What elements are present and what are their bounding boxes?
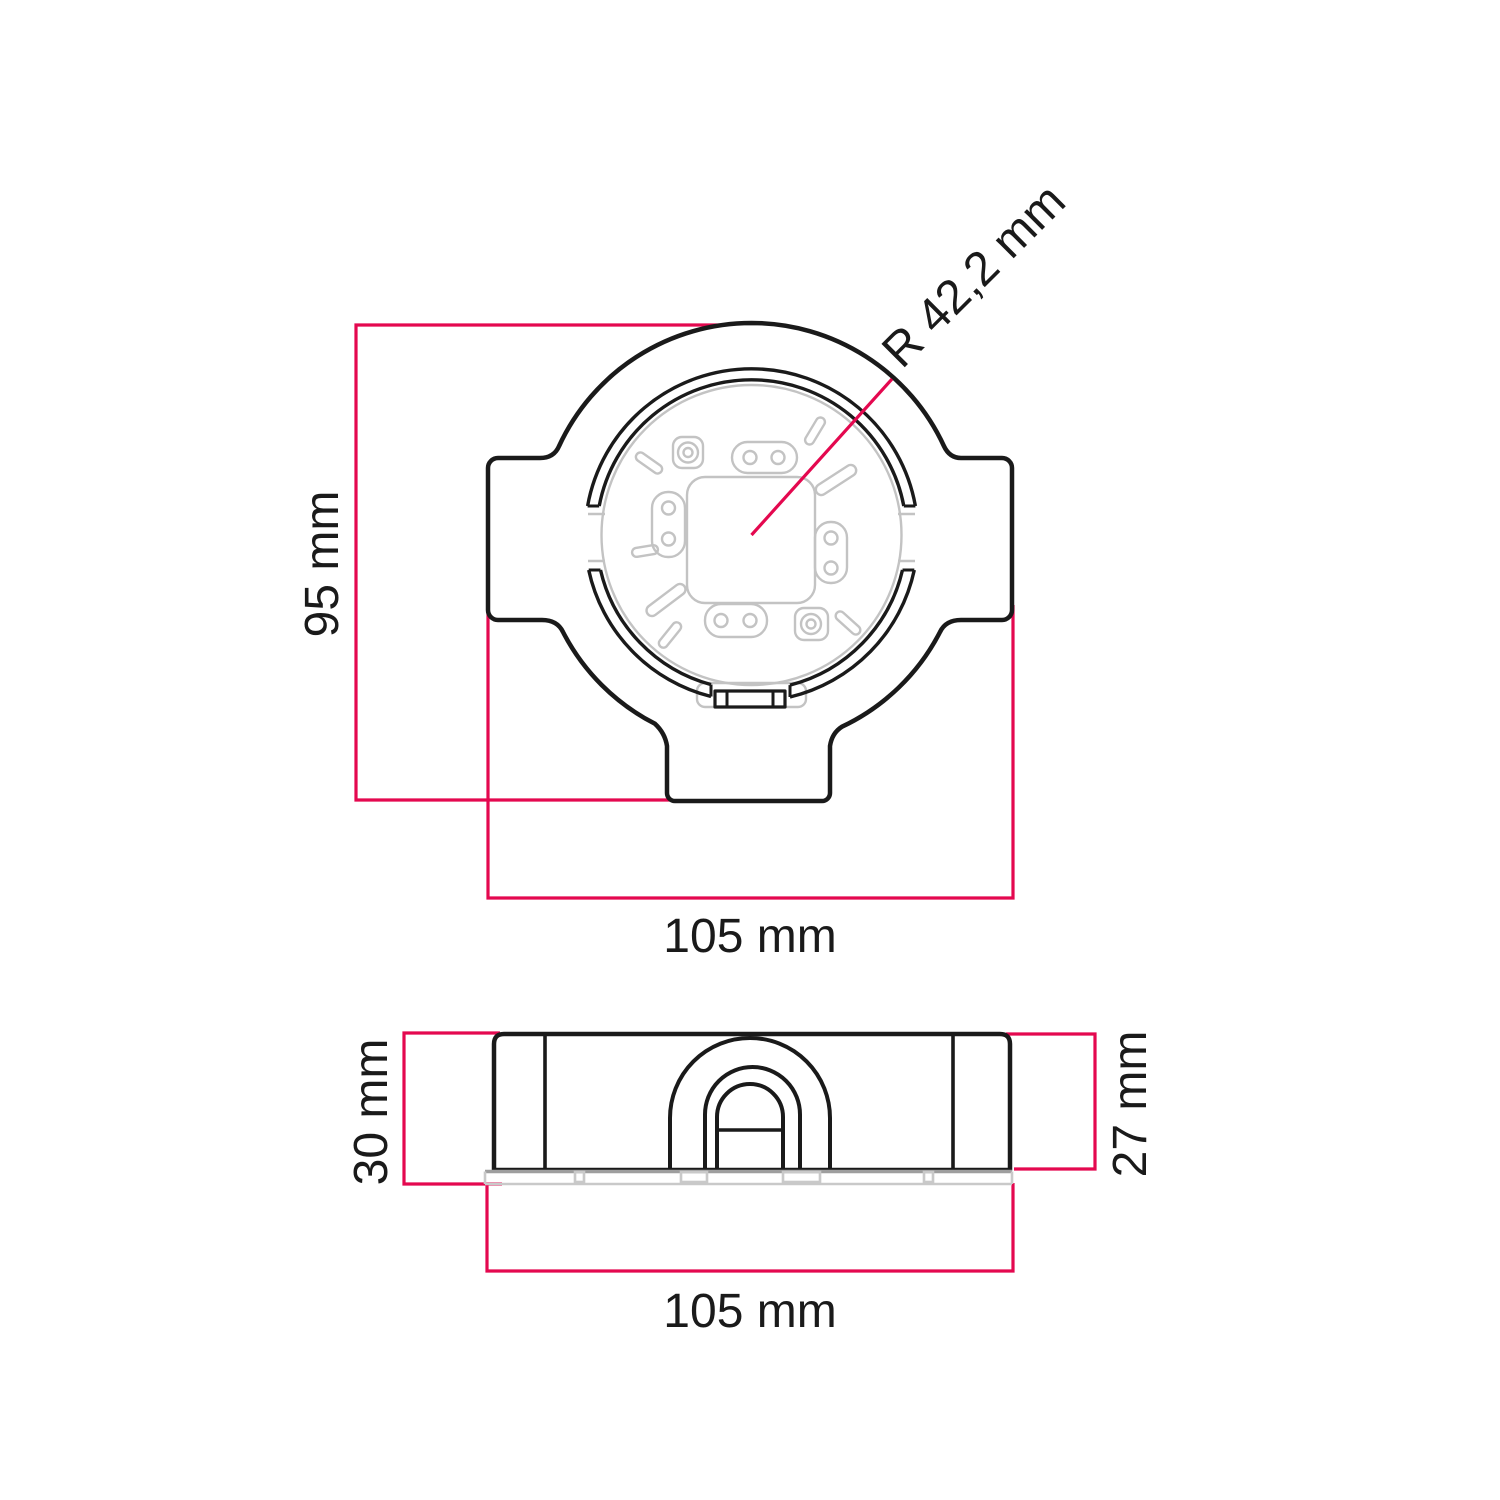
dimension-label-top-height: 95 mm: [296, 491, 349, 638]
outer-body-outline: [488, 323, 1012, 801]
side-view: 30 mm 27 mm 105 mm: [345, 1031, 1157, 1338]
dimension-label-side-total-height: 30 mm: [345, 1039, 398, 1186]
dimension-label-radius: R 42,2 mm: [872, 174, 1075, 377]
base-notch-1: [575, 1172, 584, 1182]
dimension-105mm-side: [487, 1183, 1013, 1271]
dimension-27mm: [1006, 1034, 1095, 1169]
top-view: 95 mm 105 mm R 42,2 mm: [296, 174, 1076, 963]
terminal-block: [715, 691, 785, 707]
technical-drawing-page: 95 mm 105 mm R 42,2 mm: [0, 0, 1500, 1500]
base-notch-3: [783, 1172, 820, 1182]
dimension-27mm-extension-lines: [1006, 1034, 1095, 1169]
base-notch-2: [681, 1172, 707, 1182]
technical-drawing-canvas: 95 mm 105 mm R 42,2 mm: [0, 0, 1500, 1500]
dimension-label-top-width: 105 mm: [663, 910, 836, 963]
dimension-30mm-extension-lines: [404, 1033, 502, 1184]
base-notch-4: [924, 1172, 933, 1182]
base-plate: [485, 1172, 1012, 1185]
dimension-30mm: [404, 1033, 502, 1184]
side-body-outline: [494, 1034, 1010, 1170]
dimension-label-side-body-height: 27 mm: [1104, 1031, 1157, 1178]
dimension-105mm-side-extension-lines: [487, 1183, 1013, 1271]
dimension-label-side-width: 105 mm: [663, 1285, 836, 1338]
